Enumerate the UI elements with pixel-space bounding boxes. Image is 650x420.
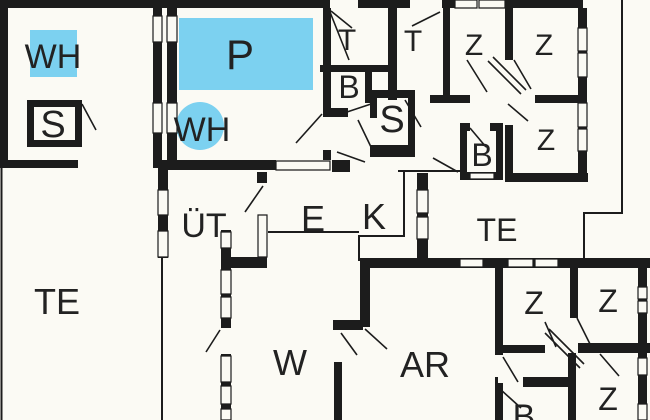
room-label-living: W (273, 342, 307, 383)
room-label-bedroom-ne-1: Z (465, 29, 483, 62)
room-label-bedroom-ne-2: Z (535, 29, 553, 62)
room-label-sauna-small: S (40, 104, 65, 146)
room-label-bath-se: B (513, 398, 536, 420)
room-label-terrace-right: TE (477, 212, 518, 248)
room-label-wh-circle: WH (174, 111, 231, 149)
room-label-wh-square: WH (25, 38, 82, 76)
room-label-bath-top: B (338, 69, 359, 105)
door-gaps (220, 328, 232, 354)
room-label-bath-ne: B (471, 137, 492, 173)
room-label-toilet-1: T (338, 24, 356, 57)
room-label-utility: ÜT (181, 207, 226, 245)
room-label-work: AR (400, 344, 450, 385)
room-label-sauna-main: S (379, 99, 404, 141)
room-label-entry: E (301, 198, 325, 239)
floor-plan: WH S P WH T T B S Z Z Z B TE ÜT E K TE W… (0, 0, 650, 420)
room-label-bedroom-ne-3: Z (537, 124, 555, 157)
room-label-toilet-2: T (404, 25, 422, 58)
room-label-pool: P (226, 31, 254, 78)
room-label-bedroom-se-3: Z (598, 381, 618, 417)
room-label-bedroom-se-2: Z (598, 283, 618, 319)
floor-plan-canvas: WH S P WH T T B S Z Z Z B TE ÜT E K TE W… (0, 0, 650, 420)
room-label-terrace-left: TE (34, 281, 80, 322)
room-label-kitchen: K (362, 196, 386, 237)
room-label-bedroom-se-1: Z (524, 285, 544, 321)
